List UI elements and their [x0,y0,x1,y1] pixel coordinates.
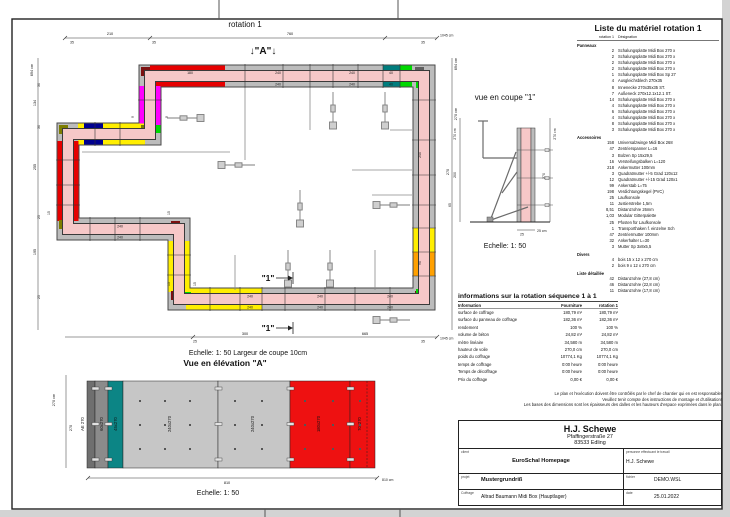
rotation-info-table: informations sur la rotation séquence 1 … [458,293,618,383]
info-row-label: rendement [458,324,544,331]
info-row-fourniture: 270,0 cm [544,346,582,353]
divider [459,448,721,449]
disclaimer-line-3: Les bases des dimensions sont les épaiss… [430,402,722,408]
svg-text:270: 270 [446,169,450,175]
panel-joints [56,64,436,311]
svg-text:15: 15 [193,282,197,286]
materials-section-panneaux: Panneaux [577,43,719,48]
svg-text:70x270: 70x270 [357,416,362,430]
coupe-scale: Echelle: 1: 50 [484,243,527,250]
formwork-plan-sheet: { "colors": { "wall": "#f6c8c8", "panel"… [0,0,730,517]
info-row-label: mètre linéaire [458,339,544,346]
materials-title: Liste du matériel rotation 1 [577,23,719,33]
plan-view: rotation 1 ↓"A"↓ [30,20,458,357]
svg-text:210: 210 [107,32,113,36]
svg-text:240: 240 [418,152,422,158]
info-row-rotation: 0:00 heure [582,368,618,375]
svg-text:240: 240 [387,306,393,310]
info-row-fourniture: 34,580 m [544,339,582,346]
info-row-fourniture: 24,82 m³ [544,331,582,338]
materials-detail-rows: 42 Distanzrohre (27,8 cm) 46 Distanzrohr… [577,276,719,294]
materials-list: Liste du matériel rotation 1 rotation 1 … [577,23,719,294]
worker-label: personne effectuant le travail [626,450,669,454]
info-row-label: Prix du coffrage [458,376,544,383]
svg-text:240: 240 [117,236,123,240]
svg-text:240x270: 240x270 [250,415,255,432]
info-rows: surface de coffrage 180,79 m² 180,79 m² … [458,309,618,383]
info-row-fourniture: 10774,1 Kg [544,353,582,360]
svg-text:240: 240 [117,225,123,229]
svg-text:694 cm: 694 cm [454,58,458,70]
svg-text:240: 240 [317,295,323,299]
materials-col-name: Désignation [618,35,637,39]
info-title: informations sur la rotation séquence 1 … [458,293,618,302]
svg-text:760: 760 [287,32,293,36]
svg-text:35: 35 [421,41,425,45]
material-name: bois 9 x 12 x 270 cm [618,263,719,269]
info-row-fourniture: 0:00 heure [544,368,582,375]
info-col-rotation: rotation 1 [582,303,618,308]
file-label: fichier [626,475,635,479]
info-row-fourniture: 182,36 m² [544,316,582,323]
svg-text:9: 9 [131,116,135,118]
svg-text:35: 35 [152,41,156,45]
svg-text:40: 40 [389,83,393,87]
materials-section-detail: Liste détaillée [577,271,719,276]
info-row-label: temps de coffrage [458,361,544,368]
svg-text:240: 240 [247,306,253,310]
svg-text:270: 270 [542,173,546,179]
client-label: client [461,450,469,454]
svg-text:240: 240 [349,71,355,75]
svg-text:270 cm: 270 cm [52,394,56,406]
divider [459,473,721,474]
info-row-rotation: 10774,1 Kg [582,353,618,360]
svg-text:200: 200 [453,172,457,178]
info-row: Temps de décoffrage 0:00 heure 0:00 heur… [458,368,618,375]
svg-text:270 cm: 270 cm [454,108,458,120]
project-label: projet [461,475,469,479]
material-name: Schalungsplatte Midi Box 270 x [618,127,719,133]
materials-columns: rotation 1 Désignation [577,35,719,41]
coupe-drawing [470,121,553,222]
svg-text:270 cm: 270 cm [553,128,557,140]
info-row: rendement 100 % 100 % [458,324,618,331]
svg-text:40: 40 [389,71,393,75]
info-col-fourniture: Fourniture [544,303,582,308]
material-qty: 2 [577,263,618,269]
info-row-rotation: 180,79 m² [582,309,618,316]
svg-text:240: 240 [387,295,393,299]
svg-text:25: 25 [520,233,524,237]
elevation-scale: Echelle: 1: 50 [197,490,240,497]
svg-text:15: 15 [167,211,171,215]
divider [459,489,721,490]
info-row: surface du panneau de coffrage 182,36 m²… [458,316,618,323]
info-row-label: poids du coffrage [458,353,544,360]
formwork-label: Coffrage [461,491,474,495]
info-row-rotation: 34,580 m [582,339,618,346]
plan-title: rotation 1 [228,20,262,29]
elevation-view: Vue en élévation "A" AE 270 60x270 45x27… [52,358,394,497]
company-address-2: 83533 Edling [459,440,721,446]
formwork-value: Altrad Baumann Midi Box (Hauptlager) [481,494,567,500]
project-value: Mustergrundriß [481,477,522,483]
info-row-fourniture: 180,79 m² [544,309,582,316]
file-value: DEMO.WSL [654,477,681,483]
client-value: EuroSchal Homepage [459,458,623,464]
svg-text:"1": "1" [262,273,275,283]
materials-accessoires-rows: 158 Universalzwinge Midi Box 268 47 Zent… [577,140,719,250]
svg-text:"1": "1" [262,323,275,333]
coupe-title: vue en coupe "1" [475,93,536,102]
svg-text:15: 15 [47,211,51,215]
svg-text:240: 240 [275,83,281,87]
info-row: volume de béton 24,82 m³ 24,82 m³ [458,331,618,338]
svg-text:90: 90 [418,261,422,265]
info-row: surface de coffrage 180,79 m² 180,79 m² [458,309,618,316]
svg-text:35: 35 [421,340,425,344]
worker-value: H.J. Schewe [626,459,654,465]
material-qty: 3 [577,244,618,250]
svg-text:45x270: 45x270 [113,416,118,430]
svg-text:810: 810 [224,481,230,485]
material-row: 3 Mutter Sp 3x8x5,5 [577,244,719,250]
svg-text:240x270: 240x270 [167,415,172,432]
svg-text:810 cm: 810 cm [382,478,394,482]
wall-band [59,67,424,300]
svg-text:60x270: 60x270 [99,416,104,430]
svg-text:270 cm: 270 cm [453,128,457,140]
info-row: hauteur de voile 270,0 cm 270,0 cm [458,346,618,353]
materials-col-qty: rotation 1 [577,35,618,39]
svg-text:665: 665 [362,332,368,336]
materials-section-accessoires: Accessoires [577,135,719,140]
material-name: Distanzrohre (17,8 cm) [618,288,719,294]
svg-text:195: 195 [33,249,37,255]
svg-text:255: 255 [33,164,37,170]
svg-text:65: 65 [448,203,452,207]
date-value: 25.01.2022 [654,494,679,500]
svg-text:AE 270: AE 270 [80,416,85,430]
info-row-fourniture: 100 % [544,324,582,331]
info-row-label: Temps de décoffrage [458,368,544,375]
info-row-rotation: 100 % [582,324,618,331]
info-row: Prix du coffrage 0,00 € 0,00 € [458,376,618,383]
info-row: poids du coffrage 10774,1 Kg 10774,1 Kg [458,353,618,360]
svg-text:180x270: 180x270 [316,415,321,432]
divider [623,448,624,505]
svg-text:25: 25 [37,295,41,299]
elevation-title: Vue en élévation "A" [183,358,266,368]
info-col-information: Information [458,303,544,308]
svg-text:300: 300 [242,332,248,336]
svg-text:240: 240 [317,306,323,310]
title-block: H.J. Schewe Pfaffingerstraße 27 83533 Ed… [458,420,722,506]
svg-text:9: 9 [165,116,169,118]
svg-text:25 cm: 25 cm [537,229,547,233]
info-row-rotation: 0,00 € [582,376,618,383]
plan-scale-note: Echelle: 1: 50 Largeur de coupe 10cm [189,350,307,357]
info-row-label: volume de béton [458,331,544,338]
svg-text:1045 cm: 1045 cm [440,34,454,38]
svg-text:270: 270 [69,425,73,431]
svg-text:25: 25 [193,340,197,344]
material-row: 2 bois 9 x 12 x 270 cm [577,263,719,269]
svg-text:180: 180 [187,71,193,75]
svg-text:15: 15 [167,282,171,286]
material-name: Mutter Sp 3x8x5,5 [618,244,719,250]
info-row-rotation: 270,0 cm [582,346,618,353]
coupe-view: vue en coupe "1" [448,93,557,250]
section-a-marker: ↓"A"↓ [250,46,277,57]
svg-text:134: 134 [33,100,37,106]
svg-text:30: 30 [37,125,41,129]
material-row: 3 Schalungsplatte Midi Box 270 x [577,127,719,133]
elevation-drawing: AE 270 60x270 45x270 240x270 240x270 180… [80,381,375,468]
info-row-label: hauteur de voile [458,346,544,353]
disclaimer-text: Le plan et l'exécution doivent être cont… [430,391,722,408]
info-row: mètre linéaire 34,580 m 34,580 m [458,339,618,346]
svg-text:240: 240 [349,83,355,87]
svg-text:25: 25 [37,215,41,219]
materials-panneaux-rows: 2 Schalungsplatte Midi Box 270 x 2 Schal… [577,48,719,133]
info-row-fourniture: 0:00 heure [544,361,582,368]
company-name: H.J. Schewe [459,424,721,434]
info-row-fourniture: 0,00 € [544,376,582,383]
date-label: date [626,491,633,495]
svg-text:35: 35 [70,41,74,45]
info-row-label: surface de coffrage [458,309,544,316]
material-qty: 3 [577,127,618,133]
info-row: temps de coffrage 0:00 heure 0:00 heure [458,361,618,368]
svg-text:694 cm: 694 cm [30,64,34,76]
info-row-rotation: 24,82 m³ [582,331,618,338]
svg-text:30: 30 [37,83,41,87]
info-row-rotation: 0:00 heure [582,361,618,368]
materials-section-divers: Divers [577,252,719,257]
svg-text:240: 240 [275,71,281,75]
svg-text:240: 240 [247,295,253,299]
svg-text:1045 cm: 1045 cm [440,337,454,341]
materials-divers-rows: 4 bois 15 x 12 x 270 cm 2 bois 9 x 12 x … [577,257,719,269]
info-row-rotation: 182,36 m² [582,316,618,323]
coupe-dimensions: 270 cm 200 65 270 cm 270 25 cm 25 [448,118,557,237]
info-row-label: surface du panneau de coffrage [458,316,544,323]
